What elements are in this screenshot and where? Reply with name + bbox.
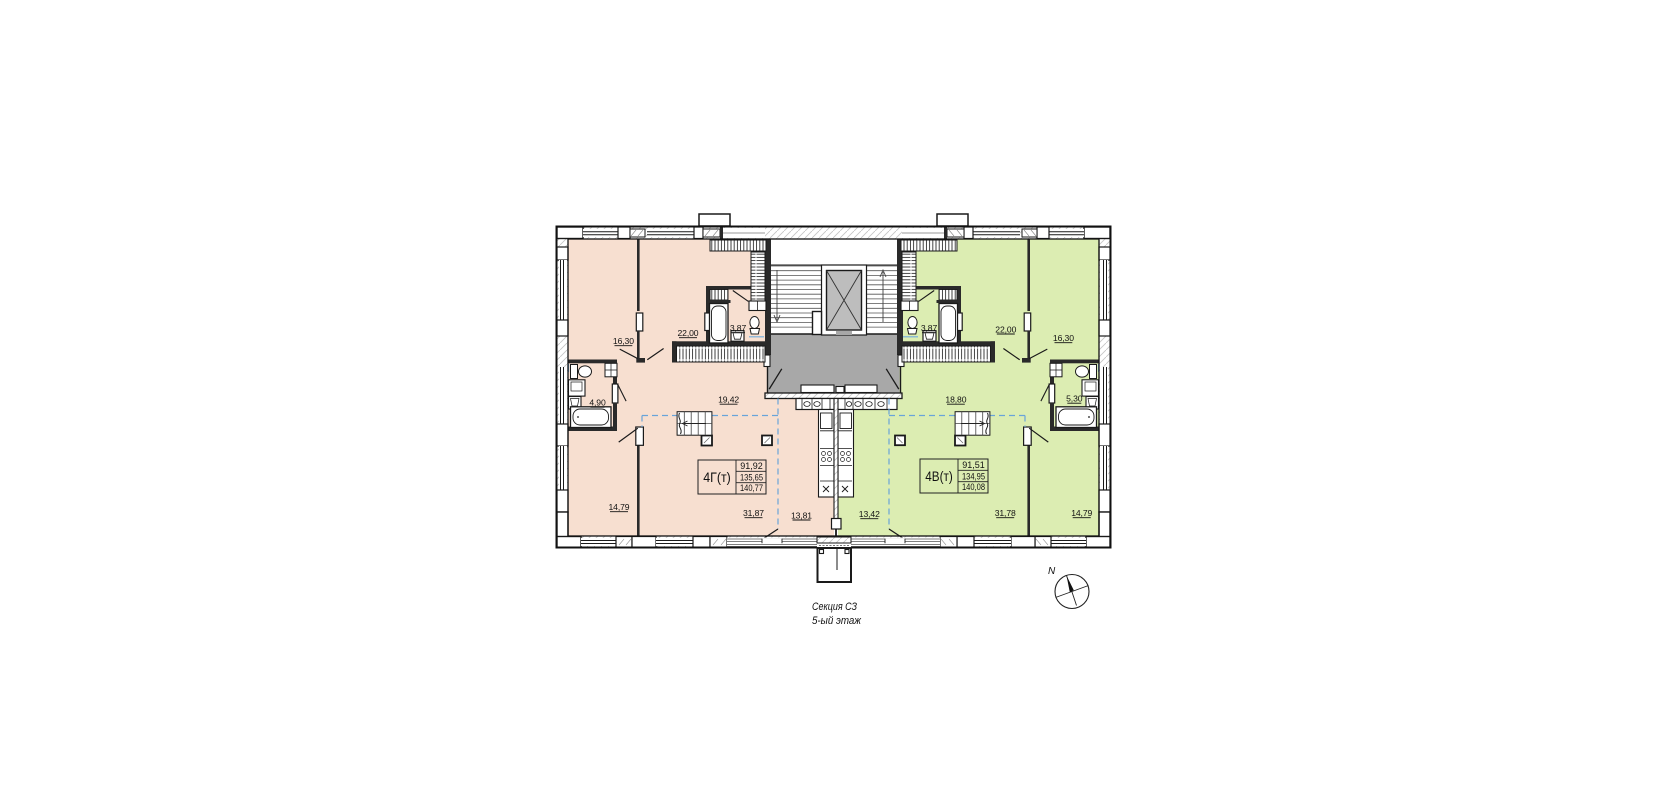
svg-text:140,77: 140,77 [740,483,763,493]
svg-text:4В(т): 4В(т) [925,468,953,484]
svg-text:5,30: 5,30 [1066,394,1083,404]
svg-text:18,80: 18,80 [945,395,966,405]
svg-text:Секция СЗ: Секция СЗ [812,601,857,613]
svg-text:5-ый этаж: 5-ый этаж [812,615,861,627]
svg-text:14,79: 14,79 [1071,508,1092,518]
svg-text:13,42: 13,42 [859,509,880,519]
svg-text:140,08: 140,08 [962,482,985,492]
svg-text:3,87: 3,87 [730,323,747,333]
svg-text:22,00: 22,00 [995,324,1016,334]
svg-text:16,30: 16,30 [613,336,634,346]
svg-text:135,65: 135,65 [740,472,763,482]
svg-text:91,92: 91,92 [740,461,763,471]
svg-text:19,42: 19,42 [718,395,739,405]
svg-text:14,79: 14,79 [608,502,629,512]
svg-text:N: N [1048,566,1056,577]
svg-text:3,87: 3,87 [921,323,938,333]
svg-text:4,90: 4,90 [589,398,606,408]
svg-text:134,95: 134,95 [962,471,985,481]
svg-text:91,51: 91,51 [962,460,985,470]
svg-text:16,30: 16,30 [1053,333,1074,343]
svg-text:31,78: 31,78 [995,508,1016,518]
svg-text:4Г(т): 4Г(т) [703,469,731,485]
svg-text:13,81: 13,81 [791,510,812,520]
svg-text:22,00: 22,00 [677,328,698,338]
svg-text:31,87: 31,87 [743,508,764,518]
